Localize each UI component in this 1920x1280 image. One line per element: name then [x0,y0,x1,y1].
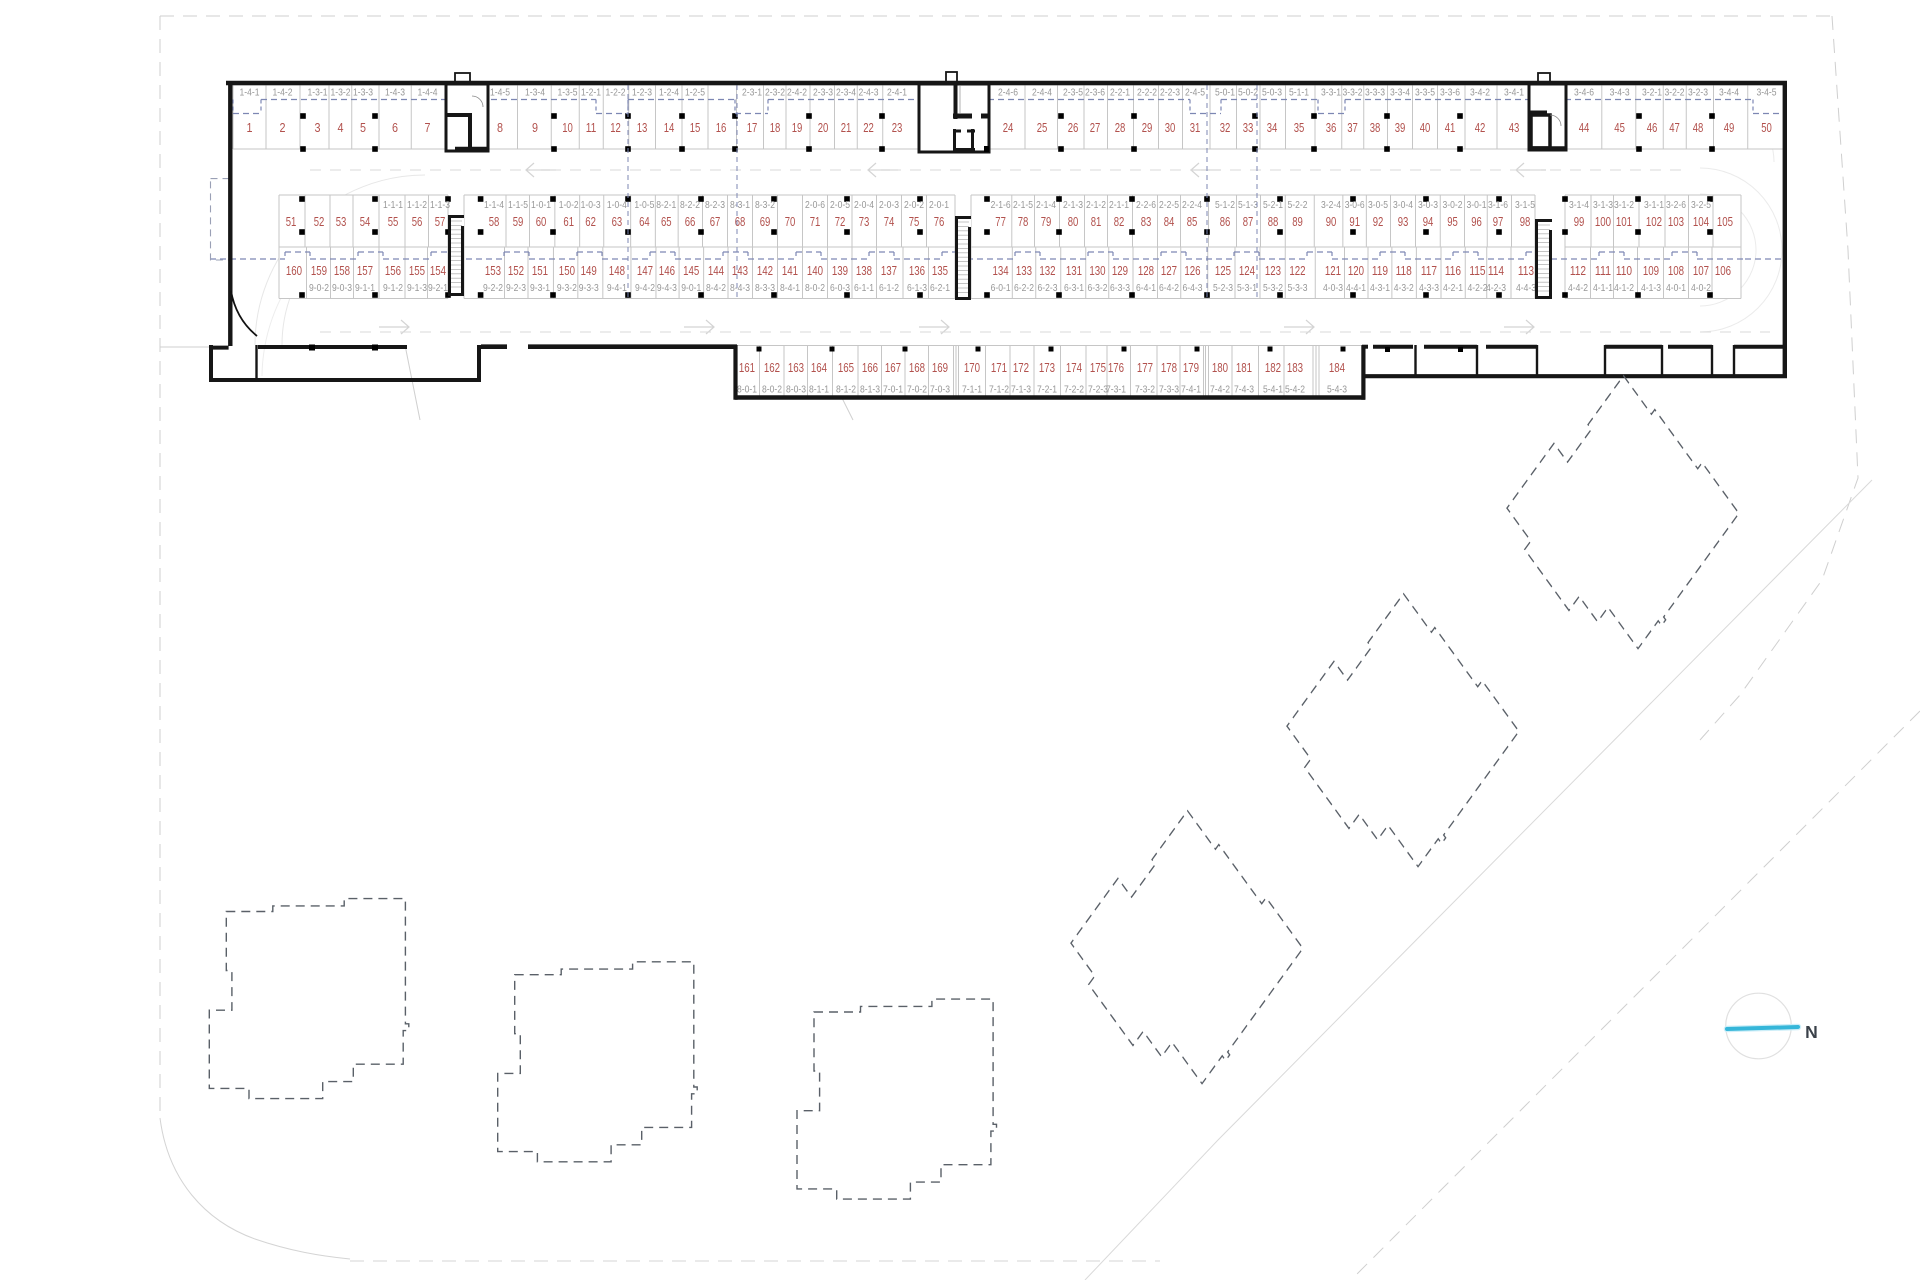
svg-text:2: 2 [280,120,286,135]
svg-text:92: 92 [1373,214,1384,229]
svg-text:139: 139 [832,263,848,278]
svg-text:117: 117 [1421,263,1437,278]
svg-text:3-2-1: 3-2-1 [1642,87,1662,99]
svg-text:50: 50 [1761,120,1772,135]
svg-text:121: 121 [1325,263,1341,278]
svg-text:3-4-5: 3-4-5 [1757,87,1777,99]
svg-text:6-1-3: 6-1-3 [907,282,927,294]
svg-text:51: 51 [286,214,297,229]
svg-text:8-2-2: 8-2-2 [680,199,700,211]
svg-text:2-3-2: 2-3-2 [765,87,785,99]
svg-text:5-1-3: 5-1-3 [1238,199,1258,211]
svg-text:5-0-1: 5-0-1 [1215,87,1235,99]
svg-text:43: 43 [1509,120,1520,135]
svg-text:5-2-1: 5-2-1 [1263,199,1283,211]
svg-text:46: 46 [1647,120,1658,135]
svg-text:8-0-2: 8-0-2 [762,384,782,396]
svg-text:3-2-2: 3-2-2 [1665,87,1685,99]
svg-text:7-1-3: 7-1-3 [1011,384,1031,396]
svg-text:165: 165 [838,360,854,375]
svg-text:164: 164 [811,360,827,375]
svg-text:1-2-3: 1-2-3 [632,87,652,99]
svg-text:38: 38 [1370,120,1381,135]
svg-text:8-2-3: 8-2-3 [705,199,725,211]
svg-text:122: 122 [1289,263,1305,278]
svg-text:179: 179 [1183,360,1199,375]
svg-text:115: 115 [1469,263,1485,278]
svg-text:2-4-1: 2-4-1 [887,87,907,99]
svg-text:2-4-4: 2-4-4 [1032,87,1052,99]
svg-text:124: 124 [1239,263,1255,278]
svg-text:7-4-1: 7-4-1 [1181,384,1201,396]
svg-text:52: 52 [314,214,325,229]
svg-text:4-1-2: 4-1-2 [1614,282,1634,294]
svg-text:141: 141 [782,263,798,278]
svg-text:111: 111 [1595,263,1611,278]
svg-text:3-2-5: 3-2-5 [1691,199,1711,211]
svg-text:28: 28 [1115,120,1126,135]
svg-text:30: 30 [1165,120,1176,135]
svg-text:181: 181 [1236,360,1252,375]
svg-text:2-1-3: 2-1-3 [1063,199,1083,211]
svg-text:6-1-1: 6-1-1 [854,282,874,294]
svg-text:26: 26 [1068,120,1079,135]
svg-text:9-1-3: 9-1-3 [407,282,427,294]
svg-text:161: 161 [739,360,755,375]
svg-text:49: 49 [1724,120,1735,135]
svg-text:12: 12 [610,120,621,135]
svg-text:2-3-1: 2-3-1 [742,87,762,99]
svg-text:118: 118 [1396,263,1412,278]
svg-text:9-4-3: 9-4-3 [657,282,677,294]
svg-text:135: 135 [932,263,948,278]
svg-text:133: 133 [1016,263,1032,278]
svg-text:4: 4 [338,120,344,135]
svg-text:3-4-3: 3-4-3 [1610,87,1630,99]
svg-text:56: 56 [412,214,423,229]
svg-text:130: 130 [1089,263,1105,278]
svg-text:2-0-6: 2-0-6 [805,199,825,211]
svg-text:3-3-6: 3-3-6 [1440,87,1460,99]
svg-text:2-1-6: 2-1-6 [991,199,1011,211]
svg-text:4-2-2: 4-2-2 [1468,282,1488,294]
svg-text:162: 162 [764,360,780,375]
svg-text:170: 170 [964,360,980,375]
svg-text:80: 80 [1068,214,1079,229]
svg-text:8-3-2: 8-3-2 [755,199,775,211]
svg-text:2-1-1: 2-1-1 [1109,199,1129,211]
svg-text:2-0-5: 2-0-5 [830,199,850,211]
svg-text:4-4-3: 4-4-3 [1516,282,1536,294]
svg-text:5-0-3: 5-0-3 [1262,87,1282,99]
svg-text:5-1-2: 5-1-2 [1215,199,1235,211]
svg-text:63: 63 [612,214,623,229]
svg-text:8-4-1: 8-4-1 [780,282,800,294]
svg-text:6: 6 [392,120,398,135]
svg-text:142: 142 [757,263,773,278]
svg-text:6-3-3: 6-3-3 [1110,282,1130,294]
svg-text:71: 71 [810,214,821,229]
svg-text:173: 173 [1039,360,1055,375]
svg-text:176: 176 [1108,360,1124,375]
svg-text:2-0-4: 2-0-4 [854,199,874,211]
svg-text:5-3-1: 5-3-1 [1237,282,1257,294]
svg-text:99: 99 [1574,214,1585,229]
svg-text:16: 16 [716,120,727,135]
svg-text:57: 57 [435,214,446,229]
svg-text:180: 180 [1212,360,1228,375]
svg-text:155: 155 [409,263,425,278]
svg-text:58: 58 [489,214,500,229]
svg-text:7-0-3: 7-0-3 [930,384,950,396]
svg-text:23: 23 [892,120,903,135]
svg-text:4-1-3: 4-1-3 [1641,282,1661,294]
svg-text:89: 89 [1292,214,1303,229]
svg-text:136: 136 [909,263,925,278]
svg-text:1-2-4: 1-2-4 [659,87,679,99]
svg-text:88: 88 [1268,214,1279,229]
svg-text:2-1-4: 2-1-4 [1036,199,1056,211]
svg-text:156: 156 [385,263,401,278]
svg-text:1-4-4: 1-4-4 [418,87,438,99]
svg-text:175: 175 [1090,360,1106,375]
svg-text:5-4-1: 5-4-1 [1263,384,1283,396]
svg-text:104: 104 [1693,214,1709,229]
svg-text:148: 148 [609,263,625,278]
svg-text:1: 1 [247,120,253,135]
svg-text:70: 70 [785,214,796,229]
svg-text:8-1-3: 8-1-3 [860,384,880,396]
svg-text:1-1-4: 1-1-4 [484,199,504,211]
svg-text:2-4-3: 2-4-3 [859,87,879,99]
svg-text:137: 137 [881,263,897,278]
svg-text:59: 59 [513,214,524,229]
svg-text:9: 9 [532,120,538,135]
svg-text:5: 5 [360,120,366,135]
svg-text:127: 127 [1161,263,1177,278]
svg-text:85: 85 [1187,214,1198,229]
svg-text:6-4-2: 6-4-2 [1159,282,1179,294]
svg-text:81: 81 [1091,214,1102,229]
svg-text:134: 134 [993,263,1009,278]
svg-text:18: 18 [770,120,781,135]
svg-text:60: 60 [536,214,547,229]
svg-text:11: 11 [586,120,597,135]
svg-text:3-4-2: 3-4-2 [1470,87,1490,99]
svg-text:146: 146 [659,263,675,278]
svg-text:100: 100 [1595,214,1611,229]
svg-text:32: 32 [1220,120,1231,135]
svg-text:1-3-5: 1-3-5 [558,87,578,99]
svg-text:2-3-5: 2-3-5 [1063,87,1083,99]
svg-text:138: 138 [856,263,872,278]
svg-text:61: 61 [563,214,574,229]
svg-text:2-2-6: 2-2-6 [1136,199,1156,211]
svg-text:3-0-1: 3-0-1 [1467,199,1487,211]
svg-text:8-0-3: 8-0-3 [786,384,806,396]
svg-text:166: 166 [862,360,878,375]
svg-text:69: 69 [760,214,771,229]
svg-text:5-3-2: 5-3-2 [1263,282,1283,294]
svg-text:3-3-1: 3-3-1 [1321,87,1341,99]
svg-text:8-0-1: 8-0-1 [737,384,757,396]
svg-text:143: 143 [732,263,748,278]
svg-text:5-2-2: 5-2-2 [1288,199,1308,211]
svg-text:167: 167 [885,360,901,375]
svg-text:8-3-1: 8-3-1 [730,199,750,211]
svg-text:5-0-2: 5-0-2 [1238,87,1258,99]
svg-text:6-0-1: 6-0-1 [991,282,1011,294]
svg-text:157: 157 [357,263,373,278]
svg-text:37: 37 [1347,120,1358,135]
svg-text:87: 87 [1243,214,1254,229]
svg-text:5-3-3: 5-3-3 [1288,282,1308,294]
svg-text:8-3-3: 8-3-3 [755,282,775,294]
svg-text:108: 108 [1668,263,1684,278]
svg-text:86: 86 [1220,214,1231,229]
svg-text:110: 110 [1616,263,1632,278]
svg-text:1-0-1: 1-0-1 [531,199,551,211]
svg-text:154: 154 [430,263,446,278]
svg-text:152: 152 [508,263,524,278]
svg-text:178: 178 [1161,360,1177,375]
svg-text:74: 74 [884,214,895,229]
svg-text:17: 17 [747,120,758,135]
svg-text:1-1-2: 1-1-2 [407,199,427,211]
svg-text:4-3-1: 4-3-1 [1370,282,1390,294]
svg-text:106: 106 [1715,263,1731,278]
svg-text:3-0-5: 3-0-5 [1368,199,1388,211]
svg-text:1-4-5: 1-4-5 [490,87,510,99]
svg-text:6-4-1: 6-4-1 [1136,282,1156,294]
svg-text:96: 96 [1471,214,1482,229]
svg-text:5-4-3: 5-4-3 [1327,384,1347,396]
svg-text:62: 62 [585,214,596,229]
svg-text:184: 184 [1329,360,1345,375]
svg-text:34: 34 [1267,120,1278,135]
svg-text:2-1-2: 2-1-2 [1086,199,1106,211]
svg-text:109: 109 [1643,263,1659,278]
svg-text:3-3-3: 3-3-3 [1365,87,1385,99]
svg-text:8-1-2: 8-1-2 [836,384,856,396]
svg-text:3-3-4: 3-3-4 [1390,87,1410,99]
svg-text:3-2-3: 3-2-3 [1688,87,1708,99]
svg-text:4-3-2: 4-3-2 [1394,282,1414,294]
svg-text:3-1-1: 3-1-1 [1644,199,1664,211]
svg-text:7-4-3: 7-4-3 [1234,384,1254,396]
svg-text:1-1-1: 1-1-1 [383,199,403,211]
svg-text:7-2-1: 7-2-1 [1037,384,1057,396]
svg-text:82: 82 [1114,214,1125,229]
svg-text:35: 35 [1294,120,1305,135]
svg-text:2-4-5: 2-4-5 [1185,87,1205,99]
svg-text:9-2-2: 9-2-2 [483,282,503,294]
svg-text:10: 10 [562,120,573,135]
svg-text:2-3-6: 2-3-6 [1085,87,1105,99]
svg-text:27: 27 [1090,120,1101,135]
svg-text:3-1-6: 3-1-6 [1488,199,1508,211]
svg-text:3-4-4: 3-4-4 [1719,87,1739,99]
svg-text:2-2-2: 2-2-2 [1137,87,1157,99]
svg-text:9-0-2: 9-0-2 [309,282,329,294]
svg-text:9-1-1: 9-1-1 [355,282,375,294]
svg-text:7-3-3: 7-3-3 [1159,384,1179,396]
svg-text:1-0-4: 1-0-4 [607,199,627,211]
svg-text:6-3-2: 6-3-2 [1088,282,1108,294]
svg-text:113: 113 [1518,263,1534,278]
svg-text:8-2-1: 8-2-1 [656,199,676,211]
svg-text:102: 102 [1646,214,1662,229]
svg-text:8-1-1: 8-1-1 [809,384,829,396]
svg-text:25: 25 [1037,120,1048,135]
svg-text:68: 68 [735,214,746,229]
svg-text:1-1-5: 1-1-5 [508,199,528,211]
svg-text:73: 73 [859,214,870,229]
svg-text:3-2-6: 3-2-6 [1666,199,1686,211]
svg-text:2-3-3: 2-3-3 [813,87,833,99]
svg-text:5-2-3: 5-2-3 [1213,282,1233,294]
svg-text:9-2-3: 9-2-3 [506,282,526,294]
svg-text:2-4-2: 2-4-2 [787,87,807,99]
svg-text:182: 182 [1265,360,1281,375]
svg-text:7-3-1: 7-3-1 [1106,384,1126,396]
svg-text:79: 79 [1041,214,1052,229]
svg-text:150: 150 [559,263,575,278]
svg-text:6-4-3: 6-4-3 [1183,282,1203,294]
svg-text:140: 140 [807,263,823,278]
svg-text:1-4-2: 1-4-2 [273,87,293,99]
svg-text:8: 8 [497,120,503,135]
svg-text:54: 54 [360,214,371,229]
svg-text:6-2-3: 6-2-3 [1038,282,1058,294]
svg-text:145: 145 [683,263,699,278]
svg-text:2-3-4: 2-3-4 [836,87,856,99]
svg-text:119: 119 [1372,263,1388,278]
svg-text:83: 83 [1141,214,1152,229]
svg-text:64: 64 [639,214,650,229]
svg-text:7-4-2: 7-4-2 [1210,384,1230,396]
svg-text:76: 76 [934,214,945,229]
svg-text:9-4-2: 9-4-2 [635,282,655,294]
svg-text:2-4-6: 2-4-6 [998,87,1018,99]
svg-text:128: 128 [1138,263,1154,278]
svg-text:98: 98 [1520,214,1531,229]
svg-text:N: N [1805,1022,1818,1042]
svg-text:3-3-2: 3-3-2 [1343,87,1363,99]
svg-text:45: 45 [1614,120,1625,135]
svg-text:2-1-5: 2-1-5 [1013,199,1033,211]
svg-text:77: 77 [995,214,1006,229]
svg-text:151: 151 [532,263,548,278]
svg-text:6-2-2: 6-2-2 [1014,282,1034,294]
svg-text:3-1-5: 3-1-5 [1515,199,1535,211]
svg-text:44: 44 [1579,120,1590,135]
svg-text:78: 78 [1018,214,1029,229]
svg-text:1-1-3: 1-1-3 [430,199,450,211]
svg-text:41: 41 [1445,120,1456,135]
svg-text:95: 95 [1447,214,1458,229]
svg-text:1-2-2: 1-2-2 [606,87,626,99]
svg-text:29: 29 [1142,120,1153,135]
svg-text:5-4-2: 5-4-2 [1285,384,1305,396]
svg-text:47: 47 [1669,120,1680,135]
svg-text:172: 172 [1013,360,1029,375]
svg-text:144: 144 [708,263,724,278]
svg-text:8-4-3: 8-4-3 [730,282,750,294]
svg-text:9-4-1: 9-4-1 [607,282,627,294]
svg-text:131: 131 [1066,263,1082,278]
svg-text:4-0-3: 4-0-3 [1323,282,1343,294]
svg-text:171: 171 [991,360,1007,375]
svg-text:1-0-2: 1-0-2 [559,199,579,211]
svg-text:1-3-4: 1-3-4 [525,87,545,99]
svg-text:159: 159 [311,263,327,278]
svg-text:168: 168 [909,360,925,375]
svg-text:66: 66 [685,214,696,229]
svg-text:48: 48 [1693,120,1704,135]
svg-text:158: 158 [334,263,350,278]
svg-text:2-0-1: 2-0-1 [929,199,949,211]
svg-text:42: 42 [1475,120,1486,135]
svg-text:7-2-2: 7-2-2 [1064,384,1084,396]
svg-text:149: 149 [581,263,597,278]
svg-text:1-3-3: 1-3-3 [353,87,373,99]
svg-text:183: 183 [1287,360,1303,375]
svg-text:2-2-4: 2-2-4 [1182,199,1202,211]
svg-text:24: 24 [1003,120,1014,135]
svg-text:39: 39 [1395,120,1406,135]
svg-text:103: 103 [1668,214,1684,229]
svg-text:6-2-1: 6-2-1 [930,282,950,294]
svg-text:3-4-1: 3-4-1 [1504,87,1524,99]
svg-text:153: 153 [485,263,501,278]
svg-text:1-3-2: 1-3-2 [331,87,351,99]
svg-text:1-2-5: 1-2-5 [685,87,705,99]
svg-text:22: 22 [863,120,874,135]
svg-text:1-4-1: 1-4-1 [240,87,260,99]
svg-text:21: 21 [841,120,852,135]
svg-text:2-2-1: 2-2-1 [1110,87,1130,99]
svg-text:93: 93 [1398,214,1409,229]
svg-text:3-0-2: 3-0-2 [1443,199,1463,211]
svg-text:3-1-4: 3-1-4 [1569,199,1589,211]
svg-text:6-1-2: 6-1-2 [879,282,899,294]
svg-text:1-2-1: 1-2-1 [581,87,601,99]
svg-text:2-2-5: 2-2-5 [1159,199,1179,211]
svg-text:3-0-4: 3-0-4 [1393,199,1413,211]
svg-text:114: 114 [1488,263,1504,278]
svg-text:1-4-3: 1-4-3 [385,87,405,99]
svg-text:14: 14 [664,120,675,135]
svg-text:84: 84 [1164,214,1175,229]
svg-text:40: 40 [1420,120,1431,135]
svg-text:3-0-6: 3-0-6 [1345,199,1365,211]
svg-text:31: 31 [1190,120,1201,135]
svg-text:9-0-3: 9-0-3 [332,282,352,294]
svg-text:174: 174 [1066,360,1082,375]
svg-text:116: 116 [1445,263,1461,278]
svg-text:4-2-3: 4-2-3 [1486,282,1506,294]
svg-text:8-4-2: 8-4-2 [706,282,726,294]
svg-text:2-0-2: 2-0-2 [904,199,924,211]
svg-text:20: 20 [818,120,829,135]
svg-text:9-3-2: 9-3-2 [557,282,577,294]
svg-text:3-2-4: 3-2-4 [1321,199,1341,211]
svg-text:4-4-1: 4-4-1 [1346,282,1366,294]
svg-text:123: 123 [1265,263,1281,278]
svg-text:160: 160 [286,263,302,278]
svg-text:3-1-3: 3-1-3 [1593,199,1613,211]
